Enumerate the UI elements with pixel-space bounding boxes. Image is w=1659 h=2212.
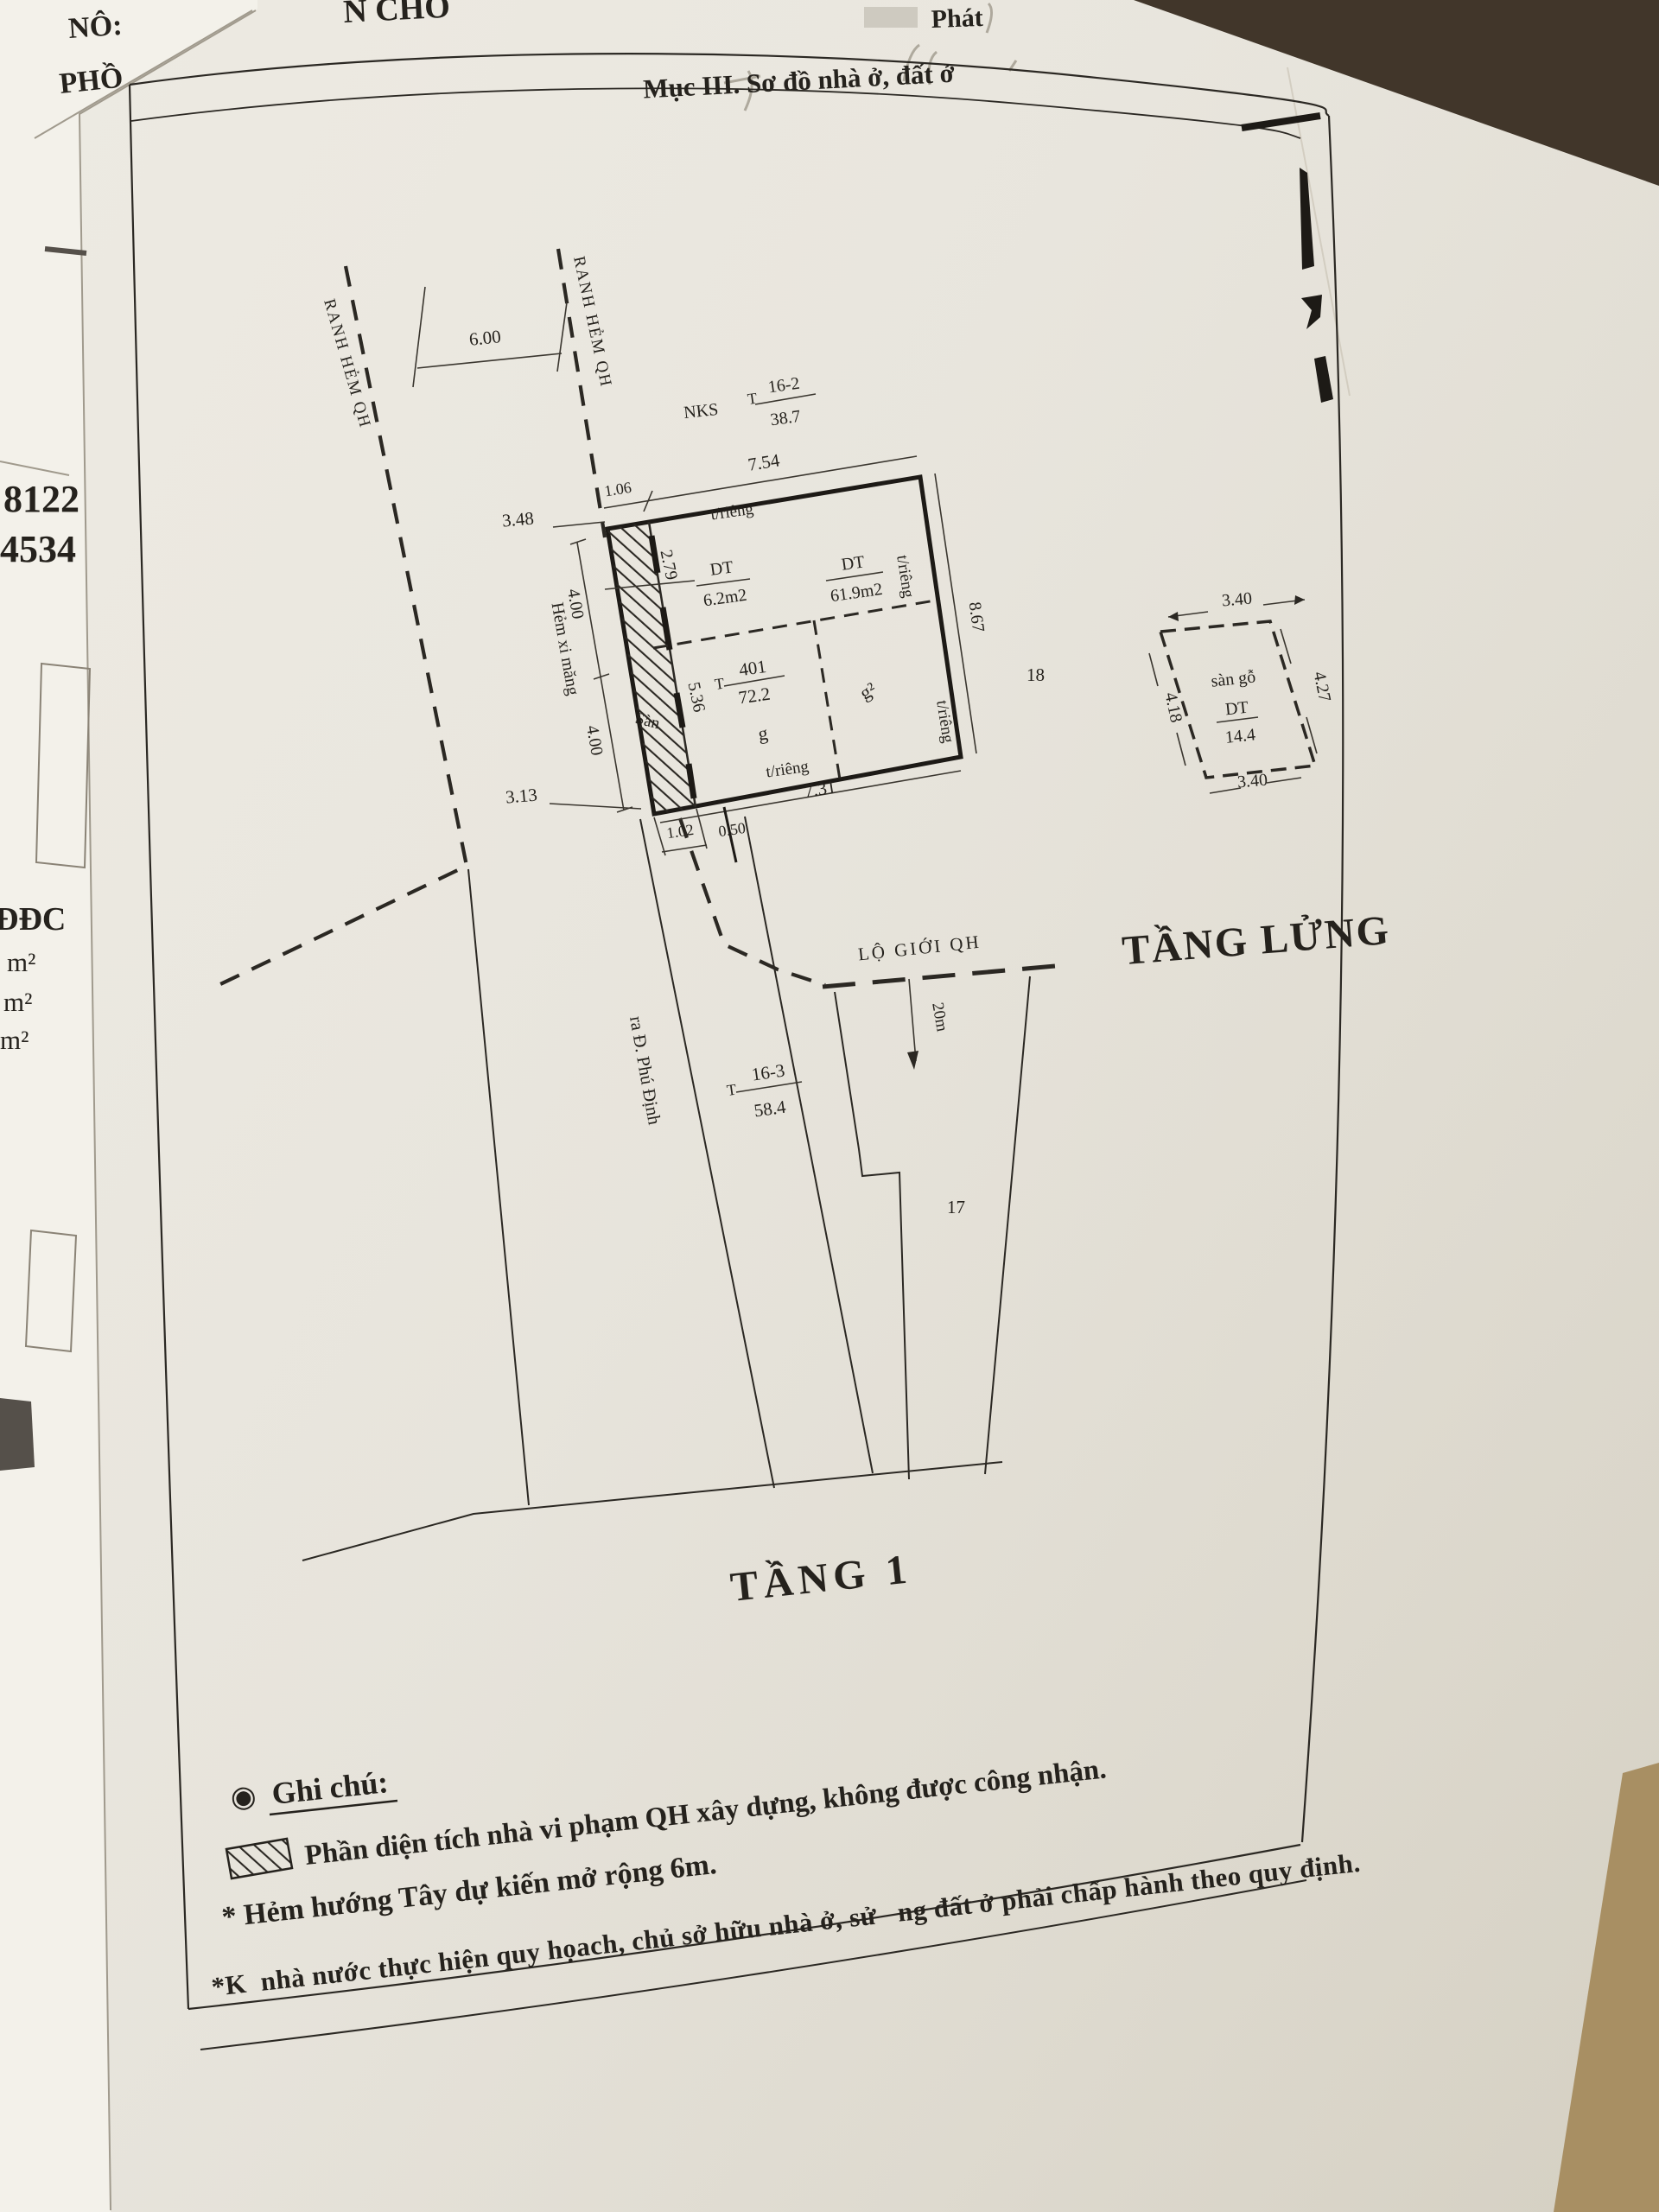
parcel-401-denominator: 72.2	[737, 683, 772, 709]
background-desk	[0, 0, 1659, 2212]
left-margin-unit-2: m²	[3, 987, 32, 1017]
left-margin-label: ĐĐC	[0, 901, 66, 938]
document-canvas: 8122 4534 ĐĐC m² m² m² NÔ: PHỒ N CHO Phá…	[0, 0, 1659, 2212]
parcel-16-3-denominator: 58.4	[753, 1096, 787, 1122]
parcel-nks-label: NKS	[683, 400, 719, 423]
top-right-fragment: Phát	[931, 3, 983, 34]
top-left-fragment-1: NÔ:	[67, 9, 124, 45]
left-margin-number-1: 8122	[3, 478, 79, 520]
left-margin-unit-1: m²	[7, 947, 35, 977]
paper-shading	[0, 0, 1659, 2212]
area-3-label: DT	[1224, 698, 1249, 720]
left-edge-dark-box	[0, 1398, 35, 1471]
dim-gap-left: 3.48	[501, 507, 535, 531]
neighbor-17: 17	[947, 1197, 965, 1217]
photographed-document-page: 8122 4534 ĐĐC m² m² m² NÔ: PHỒ N CHO Phá…	[0, 0, 1659, 2212]
dim-alley-width: 6.00	[468, 326, 502, 350]
dim-gap-bottom: 3.13	[505, 784, 538, 807]
left-margin-unit-3: m²	[0, 1025, 29, 1055]
area-1-label: DT	[709, 557, 734, 579]
dim-mezz-bottom: 3.40	[1236, 771, 1268, 792]
dim-mezz-top: 3.40	[1221, 589, 1253, 611]
parcel-401-numerator: 401	[738, 656, 768, 680]
notes-bullet-icon: ◉	[229, 1780, 257, 1815]
area-2-label: DT	[840, 552, 865, 574]
left-margin-number-2: 4534	[0, 528, 76, 570]
stamp-smudge	[864, 7, 918, 28]
neighbor-18: 18	[1027, 664, 1045, 685]
area-3-value: 14.4	[1224, 725, 1256, 747]
